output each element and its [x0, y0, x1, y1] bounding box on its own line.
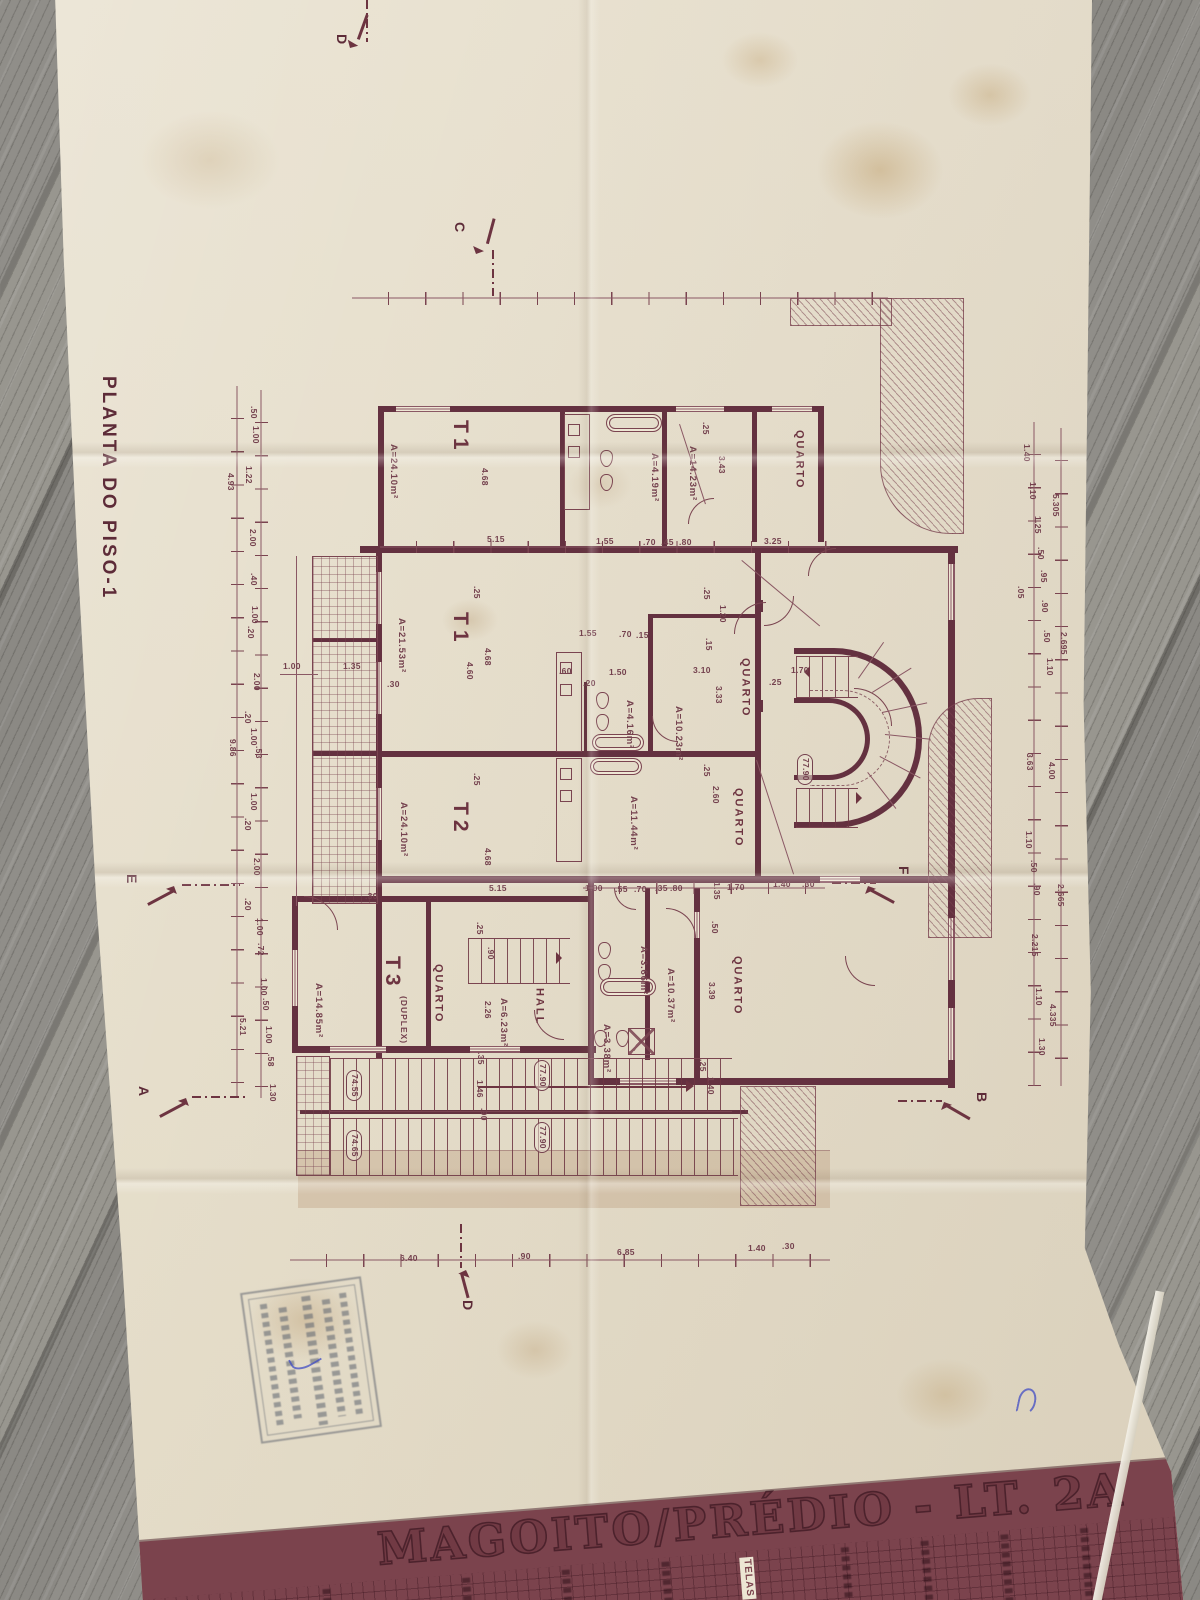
dim-label: 4.93	[225, 473, 235, 491]
dim-label: .90	[1039, 600, 1049, 613]
dim-label: 3.33	[713, 686, 723, 704]
retaining-wall-hatch	[928, 698, 992, 938]
section-line	[366, 0, 368, 42]
area-label: A=10.37m²	[664, 968, 675, 1023]
dim-label: .05	[1015, 586, 1025, 599]
dim-label: .20	[242, 898, 252, 911]
dim-label: .30	[365, 892, 378, 902]
dim-label: .20	[245, 626, 255, 639]
dim-label: .72	[255, 943, 265, 956]
stair-treads	[330, 1058, 732, 1112]
section-arrow	[486, 218, 495, 244]
room-label: T1	[448, 612, 472, 647]
dim-label: 4.68	[482, 648, 492, 666]
dim-label: .25	[474, 922, 484, 935]
wall	[426, 896, 431, 1048]
terrace-edge-line	[296, 556, 297, 906]
elevation-badge: 74.65	[346, 1130, 362, 1161]
window	[330, 1046, 386, 1053]
dim-label: 3.10	[693, 666, 711, 676]
dim-label: 1.10	[1033, 988, 1043, 1006]
dim-label: .70	[619, 630, 632, 640]
window	[292, 950, 298, 1006]
wall	[648, 616, 653, 753]
door-arc	[845, 956, 875, 986]
wall	[818, 406, 824, 542]
dim-label: 1.40	[705, 1077, 715, 1095]
bathtub	[606, 414, 662, 432]
room-label: QUARTO	[432, 964, 445, 1023]
wall-pier	[755, 700, 763, 712]
window	[948, 1008, 955, 1060]
dim-label: 6.40	[400, 1254, 418, 1264]
dim-label: 1.22	[243, 466, 253, 484]
dim-label: 1.46	[474, 1080, 484, 1098]
dim-label: 4.335	[1047, 1004, 1057, 1027]
elevation-badge: 77.90	[534, 1122, 550, 1153]
window	[772, 406, 812, 412]
dim-label: 1.00	[248, 793, 258, 811]
dim-label: .53	[253, 746, 263, 759]
dim-label: 4.68	[479, 468, 489, 486]
dim-label: 1.70	[791, 666, 809, 676]
dim-label: .25	[769, 678, 782, 688]
dim-label: 2.00	[251, 673, 261, 691]
dim-label: .90	[485, 947, 495, 960]
dim-label: .25	[471, 586, 481, 599]
dim-label: .30	[387, 680, 400, 690]
dim-label: .15	[703, 638, 713, 651]
window	[948, 564, 955, 620]
dim-label: 5.15	[487, 535, 505, 545]
section-arrow	[147, 889, 175, 905]
elevation-badge: 74.55	[346, 1070, 362, 1101]
wall	[378, 406, 384, 548]
room-label: T2	[448, 802, 472, 837]
dim-label: .58	[265, 1054, 275, 1067]
dim-label: .35	[475, 1052, 485, 1065]
fold-crease	[0, 862, 1200, 888]
room-label: QUARTO	[739, 658, 752, 717]
dim-label: .15	[636, 631, 649, 641]
sink	[560, 768, 572, 780]
dim-label: 2.00	[247, 529, 257, 547]
dim-label: 1.10	[1044, 658, 1054, 676]
stair-treads	[468, 938, 570, 984]
stove	[560, 684, 572, 696]
dimension-line	[280, 674, 318, 675]
room-label: T3	[380, 956, 404, 991]
stair-arrow	[686, 1080, 700, 1092]
dim-label: 1.10	[1027, 482, 1037, 500]
dim-label: .50	[1041, 630, 1051, 643]
bidet	[600, 474, 613, 491]
dim-label: 2.60	[710, 786, 720, 804]
room-label: (DUPLEX)	[398, 996, 408, 1044]
dim-label: .25	[471, 773, 481, 786]
dim-label: .30	[782, 1242, 795, 1252]
dim-label: 1.20	[717, 605, 727, 623]
room-label: HALL	[533, 988, 546, 1025]
paper-sheet: PLANTA DO PISO-1 77.90 77.90 77.90 74.55…	[0, 0, 1200, 1600]
dim-label: .95	[1038, 570, 1048, 583]
stair-arrow	[556, 952, 568, 964]
section-line	[460, 1224, 462, 1268]
dim-label: .45	[661, 538, 674, 548]
dim-label: 1.40	[748, 1244, 766, 1254]
section-marker-d-bottom: D	[460, 1300, 476, 1310]
dim-label: 5.21	[237, 1018, 247, 1036]
area-label: A=11.44m²	[627, 796, 638, 850]
dim-label: 3.39	[706, 982, 716, 1000]
dim-label: .40	[248, 573, 258, 586]
section-marker-c: C	[452, 222, 468, 232]
diagonal-line	[756, 760, 794, 875]
dim-label: 2.215	[1029, 934, 1039, 957]
floor-plan: PLANTA DO PISO-1 77.90 77.90 77.90 74.55…	[0, 0, 1200, 1600]
dim-label: 1.00	[249, 606, 259, 624]
dim-label: 3.25	[764, 537, 782, 547]
section-line	[192, 1096, 246, 1098]
shower	[628, 1028, 655, 1055]
section-marker-a: A	[136, 1086, 152, 1096]
dim-label: .50	[248, 406, 258, 419]
section-line	[492, 250, 494, 296]
fold-crease-vertical	[578, 0, 600, 1600]
dim-label: 1.30	[267, 1084, 277, 1102]
section-arrowhead	[468, 246, 484, 262]
room-label: QUARTO	[731, 956, 744, 1015]
fold-crease	[0, 1168, 1200, 1194]
dim-label: 2.695	[1058, 632, 1068, 655]
stair-treads	[796, 788, 858, 828]
area-label: A=10.23m²	[672, 706, 683, 761]
dim-label: 1.00	[254, 918, 264, 936]
section-line	[898, 1100, 942, 1102]
dim-label: .20	[242, 818, 252, 831]
dim-label: 1.50	[609, 668, 627, 678]
photo-of-blueprint: { "plan": { "title": "PLANTA DO PISO-1",…	[0, 0, 1200, 1600]
dim-label: 1.00	[258, 978, 268, 996]
elevation-badge: 77.90	[534, 1060, 550, 1091]
retaining-wall-hatch	[880, 298, 964, 534]
door-arc	[666, 908, 696, 938]
terrace-tiles	[312, 556, 378, 904]
dim-label: 3.63	[1024, 753, 1034, 771]
area-label: A=4.16m²	[623, 700, 634, 749]
dim-label: 6.85	[617, 1248, 635, 1258]
section-arrow	[159, 1101, 187, 1117]
dim-label: 1.00	[263, 1026, 273, 1044]
dim-label: .25	[697, 1059, 707, 1072]
door-arc	[734, 602, 766, 634]
dim-label: .60	[559, 667, 572, 677]
dim-label: .70	[643, 538, 656, 548]
plan-title: PLANTA DO PISO-1	[97, 376, 119, 600]
area-label: A=24.10m²	[397, 802, 408, 857]
stove	[560, 790, 572, 802]
fold-crease	[0, 442, 1200, 468]
window	[676, 406, 724, 412]
dimension-chain	[1055, 428, 1068, 1086]
area-label: A=6.23m²	[497, 998, 508, 1047]
dim-label: 5.305	[1050, 494, 1060, 517]
dim-label: 1.00	[248, 728, 258, 746]
dim-label: 1.30	[1036, 1038, 1046, 1056]
tile-hatch	[296, 1056, 330, 1176]
wall	[662, 410, 667, 548]
area-label: A=14.85m²	[312, 983, 323, 1038]
dim-label: .90	[518, 1252, 531, 1262]
dim-label: 2.26	[482, 1001, 492, 1019]
wall	[752, 410, 757, 542]
area-label: A=3.66m²	[637, 946, 648, 995]
dim-label: 1.00	[283, 662, 301, 672]
dim-label: .50	[709, 921, 719, 934]
dim-label: .90	[478, 1108, 488, 1121]
dim-label: .50	[260, 998, 270, 1011]
dim-label: .25	[701, 764, 711, 777]
dim-label: 4.00	[1046, 762, 1056, 780]
dimension-chain	[290, 1254, 830, 1267]
elevation-badge: 77.90	[797, 754, 813, 785]
dim-label: 1.25	[1032, 516, 1042, 534]
dim-label: 9.86	[227, 739, 237, 757]
door-arc	[688, 498, 714, 524]
room-label: QUARTO	[732, 788, 745, 847]
window	[396, 406, 450, 412]
section-marker-b: B	[974, 1092, 990, 1102]
dim-label: .80	[679, 538, 692, 548]
dim-label: 1.10	[1023, 831, 1033, 849]
dim-label: .25	[700, 422, 710, 435]
dim-label: 4.60	[464, 662, 474, 680]
dim-label: .20	[242, 711, 252, 724]
stair-arrow	[856, 792, 868, 804]
dimension-chain	[352, 292, 888, 305]
dim-label: 1.35	[343, 662, 361, 672]
area-label: A=21.53m²	[395, 618, 406, 673]
dim-label: .25	[701, 587, 711, 600]
area-label: A=3.38m²	[600, 1024, 611, 1073]
dim-label: .50	[1035, 547, 1045, 560]
